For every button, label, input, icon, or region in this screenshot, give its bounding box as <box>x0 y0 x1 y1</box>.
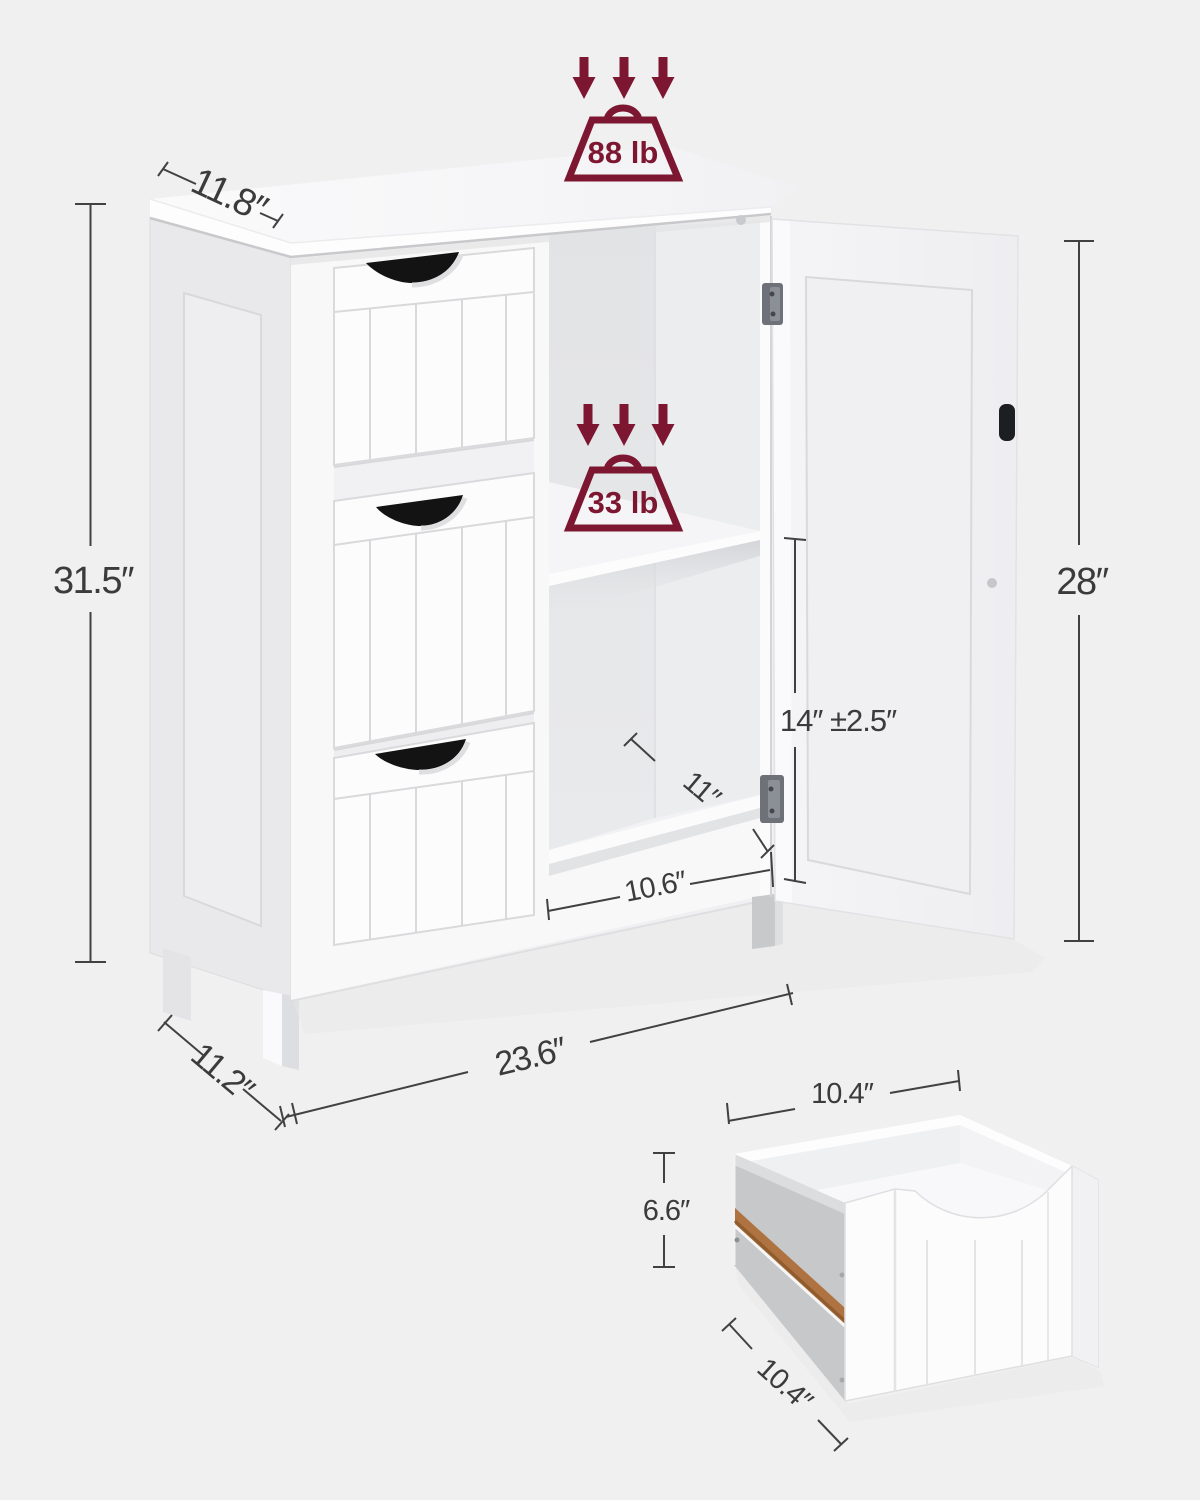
svg-text:28″: 28″ <box>1056 561 1108 603</box>
svg-text:6.6″: 6.6″ <box>643 1195 690 1227</box>
svg-text:31.5″: 31.5″ <box>53 560 134 602</box>
svg-text:10.4″: 10.4″ <box>811 1078 873 1110</box>
svg-text:88 lb: 88 lb <box>588 135 659 170</box>
svg-text:14″ ±2.5″: 14″ ±2.5″ <box>780 703 897 738</box>
svg-text:33 lb: 33 lb <box>588 485 659 520</box>
